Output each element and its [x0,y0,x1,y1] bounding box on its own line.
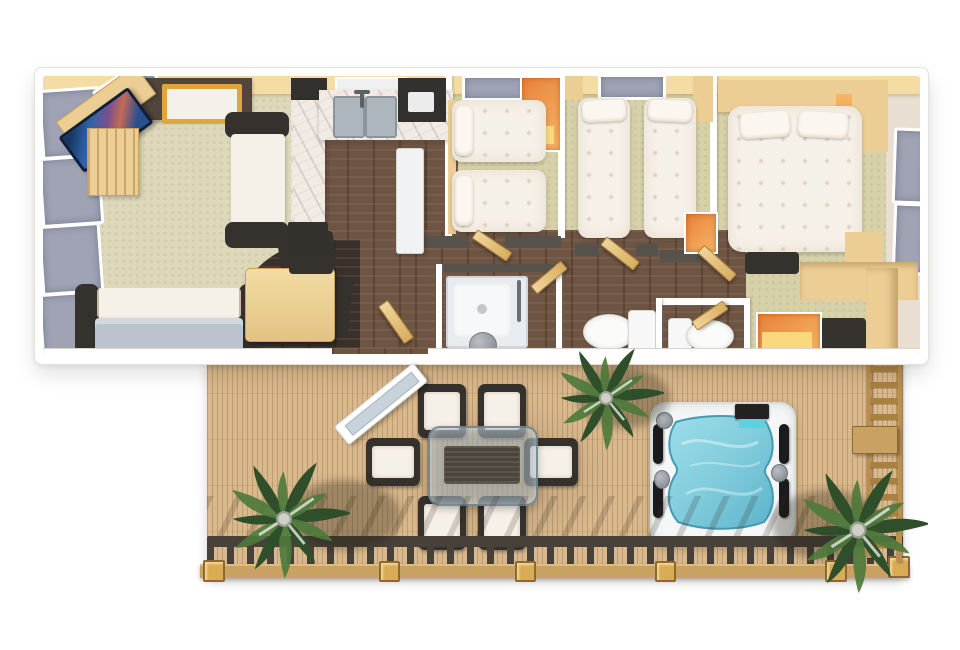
breakfast-bar-end-cap [288,222,328,252]
master-window [892,127,920,204]
bedroom2-window [598,76,666,100]
railing-post-cap [655,561,676,582]
wc2-top-wall [656,298,750,305]
bed-pillow [455,176,473,226]
bed-pillow [797,111,848,140]
bathroom-top-wall [436,264,560,272]
railing-post-cap [379,561,400,582]
shower-column [517,280,521,322]
floorplan-render: Top-down 3D architectural rendering of a… [0,0,960,650]
master-wardrobe [800,262,918,300]
patio-door-threshold [332,348,428,354]
corridor-wall-seg [575,244,599,256]
bed-pillow [581,99,626,123]
bedroom2-shelf [565,76,583,100]
lodge-interior [43,76,920,354]
bed-pillow [455,106,473,156]
bedroom1-window [462,76,526,101]
ladder-bracket [852,426,898,454]
hot-tub-jet [771,464,788,482]
bed-pillow [739,110,791,139]
sofa-cushions [231,134,285,224]
hot-tub-headrest [779,424,789,464]
master-wardrobe-return [845,232,882,262]
hot-tub-control-screen [739,419,765,428]
master-bench [745,252,799,274]
deck-chair [366,438,420,486]
corridor-wall-seg [636,244,658,256]
table-runner [444,446,520,484]
bed-pillow [647,99,692,123]
sofa-bed-back-cushions [97,288,241,318]
fridge [396,148,424,254]
lodge-unit [35,68,928,364]
chair-cushion [484,392,520,430]
dining-table [245,268,335,342]
chair-cushion [372,446,414,478]
shower-drain [477,304,487,314]
railing-post-cap [515,561,536,582]
wc2-right-wall [744,298,750,354]
sink-faucet-spout [354,90,370,94]
sink-faucet [360,92,364,108]
palm-plant-top [548,342,664,454]
side-cabinet [87,128,139,196]
chair-cushion [424,392,460,430]
bathroom-left-wall [436,264,442,354]
hot-tub-jet [654,470,670,489]
palm-plant-bottom-right [788,462,928,598]
dining-chair-back [289,262,333,274]
corridor-wall-seg [505,236,561,248]
bottom-wall [43,348,920,354]
hob-white-square [408,92,434,112]
bedroom2-shelf [693,76,713,122]
palm-plant-bottom-left [218,455,350,583]
lobby-wardrobe [866,268,898,354]
sink-basin [365,96,397,138]
hot-tub-control-panel [735,404,769,419]
